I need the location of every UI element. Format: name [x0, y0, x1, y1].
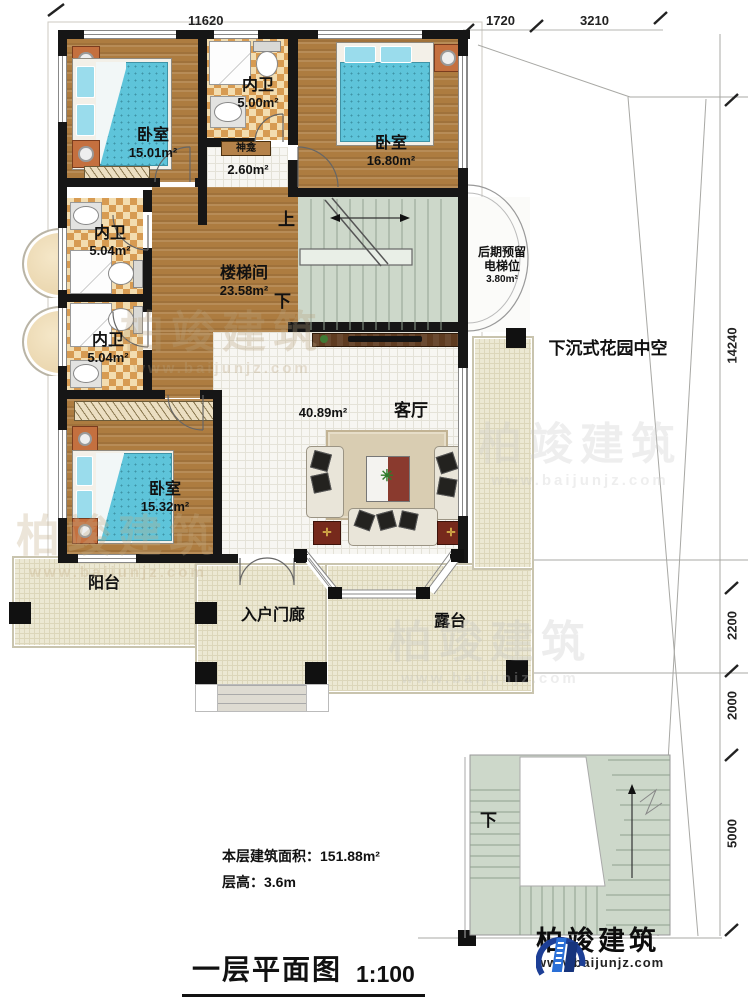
room-label-bedroom-tl: 卧室15.01m² [108, 128, 198, 160]
room-label-elevator: 后期预留 电梯位 3.80m² [468, 246, 536, 285]
dim-top-3210: 3210 [580, 13, 609, 28]
company-logo: 柏竣建筑 www.baijunjz.com [536, 928, 664, 970]
dim-top-1720: 1720 [486, 13, 515, 28]
dim-right-2000: 2000 [725, 687, 740, 725]
room-label-balcony: 阳台 [72, 576, 136, 593]
floor-area-note: 本层建筑面积：151.88m² [222, 846, 380, 866]
stair-up-label: 上 [278, 205, 295, 230]
floor-info: 本层建筑面积：151.88m² 层高：3.6m [222, 846, 380, 892]
dim-top-11620: 11620 [188, 13, 223, 28]
room-label-porch: 入户门廊 [228, 608, 318, 625]
stair-landing [300, 249, 412, 265]
stair-down-label: 下 [274, 287, 291, 312]
room-label-living: 客厅 [378, 402, 444, 420]
outdoor-stair [465, 755, 670, 938]
room-label-shrine-area: 2.60m² [218, 162, 278, 177]
logo-icon [536, 928, 588, 988]
room-label-bedroom-tr: 卧室16.80m² [346, 136, 436, 168]
dim-right-14240: 14240 [725, 324, 740, 368]
room-label-terrace: 露台 [418, 614, 482, 631]
room-label-bath-low: 内卫5.04m² [76, 333, 140, 365]
floor-height-note: 层高：3.6m [222, 872, 380, 892]
floor-plan-canvas: ✳ ✛ ✛ 神龛 [0, 0, 750, 997]
room-label-living-area: 40.89m² [288, 405, 358, 420]
room-label-bedroom-bl: 卧室15.32m² [120, 482, 210, 514]
room-label-bath-mid: 内卫5.04m² [78, 226, 142, 258]
room-label-bath-top: 内卫5.00m² [226, 78, 290, 110]
drawing-title-row: 一层平面图 1:100 [182, 948, 425, 997]
dim-right-5000: 5000 [725, 815, 740, 853]
bay-window [294, 549, 464, 599]
outdoor-stair-down-label: 下 [480, 806, 497, 831]
dim-right-2200: 2200 [725, 607, 740, 645]
room-label-garden: 下沉式花园中空 [538, 340, 678, 358]
page-title: 一层平面图 [192, 948, 342, 988]
drawing-scale: 1:100 [356, 961, 415, 988]
